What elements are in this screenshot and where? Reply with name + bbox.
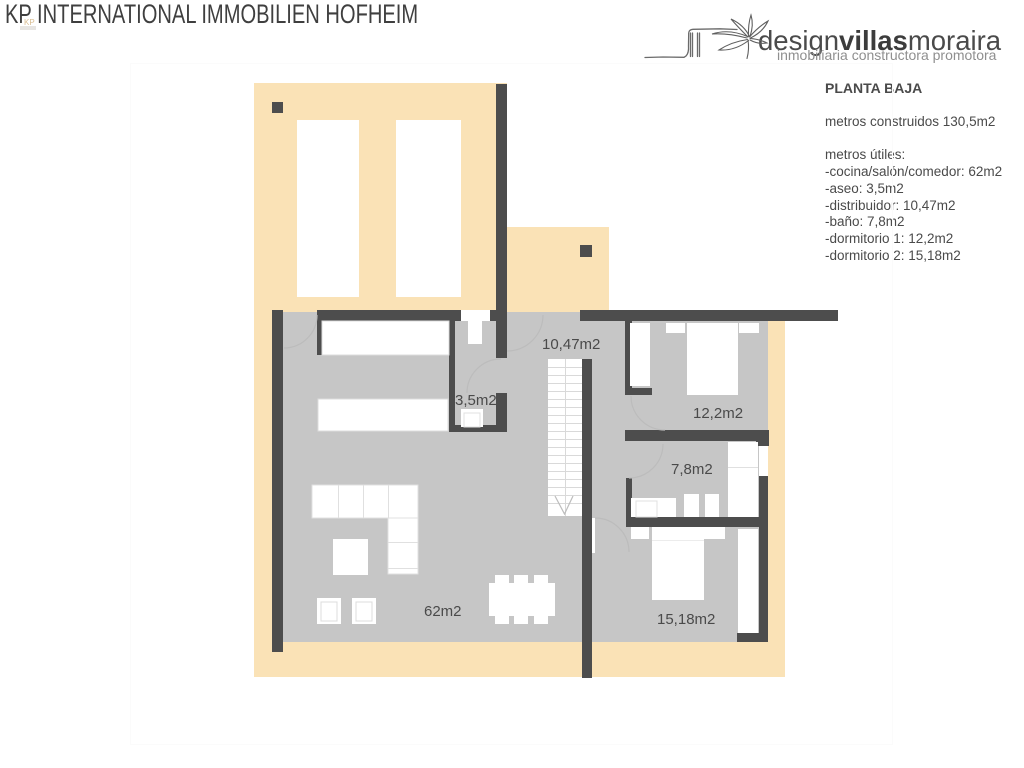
svg-text:3,5m2: 3,5m2 bbox=[455, 392, 497, 409]
svg-text:10,47m2: 10,47m2 bbox=[542, 336, 600, 353]
svg-text:7,8m2: 7,8m2 bbox=[671, 461, 713, 478]
svg-text:12,2m2: 12,2m2 bbox=[693, 405, 743, 422]
svg-text:62m2: 62m2 bbox=[424, 603, 462, 620]
svg-text:15,18m2: 15,18m2 bbox=[657, 611, 715, 628]
